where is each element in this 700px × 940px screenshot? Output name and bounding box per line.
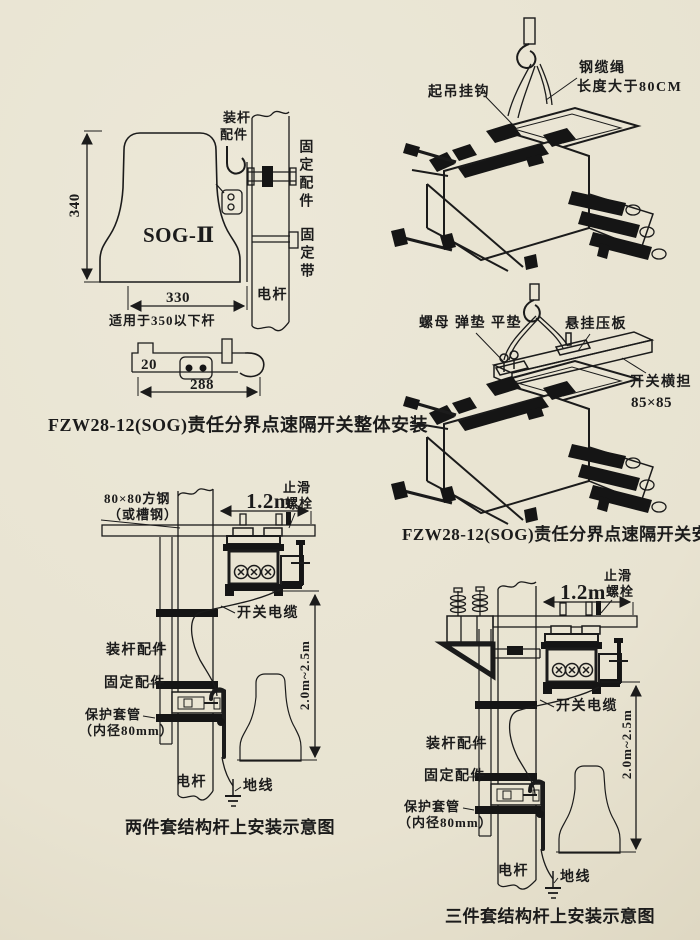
crossarm-switch-drawing (391, 361, 666, 524)
pole-fitting-label-line2: 配件 (220, 128, 248, 142)
ground-wire-label-two-piece: 地线 (243, 779, 274, 794)
ground-symbol-two-piece (225, 779, 241, 806)
height-range-label-three-piece: 2.0m~2.5m (620, 689, 634, 799)
pole-fitting-label-three-piece: 装杆配件 (426, 737, 488, 752)
antislip-label-line2-two-piece: 螺栓 (285, 497, 313, 511)
antislip-label-line2-three-piece: 螺栓 (606, 585, 634, 599)
caption-three-piece: 三件套结构杆上安装示意图 (430, 908, 670, 927)
switch-cable-label-two-piece: 开关电缆 (237, 606, 299, 621)
pole-label-two-piece: 电杆 (176, 775, 207, 790)
cable-length-label: 长度大于80CM (577, 80, 682, 95)
crane-hook-drawing (508, 18, 552, 118)
lifting-hook-label: 起吊挂钩 (428, 85, 490, 100)
switch-device-two-piece (223, 528, 310, 596)
height-range-label-two-piece: 2.0m~2.5m (298, 620, 312, 730)
switch-crossarm-label: 开关横担 (630, 375, 692, 390)
pole-drawing-three-piece (498, 582, 536, 889)
crossarm-drawing-three-piece (493, 601, 637, 627)
fixing-strap-drawing (252, 232, 298, 248)
fixing-fitting-label-three-piece: 固定配件 (424, 769, 486, 784)
pole-fitting-hook-drawing (222, 146, 245, 214)
switch-cable-three-piece (510, 687, 599, 879)
ground-symbol-three-piece (545, 871, 561, 898)
antislip-label-line1-two-piece: 止滑 (283, 481, 311, 495)
pole-fitting-label-line1: 装杆 (223, 111, 251, 125)
caption-switch-install: FZW28-12(SOG)责任分界点速隔开关安装 (402, 526, 698, 545)
steel-cable-label: 钢缆绳 (579, 61, 626, 76)
pole-fitting-label-two-piece: 装杆配件 (106, 643, 168, 658)
protect-tube-label-line2-three-piece: （内径80mm） (398, 816, 493, 830)
protect-tube-label-line1-two-piece: 保护套管 (85, 708, 141, 722)
dim-340-label: 340 (67, 185, 84, 225)
caption-two-piece: 两件套结构杆上安装示意图 (115, 819, 345, 838)
device-model-label: SOG-Ⅱ (143, 224, 205, 247)
sog-bell-outline-drawing (100, 133, 247, 282)
hardware-label: 螺母 弹垫 平垫 (419, 316, 522, 331)
crossarm-size-label: 85×85 (631, 395, 672, 412)
fit-note-label: 适用于350以下杆 (109, 314, 216, 328)
square-steel-label-line2: （或槽钢） (108, 508, 178, 522)
fixing-strap-label: 固定带 (298, 227, 313, 293)
dim-20-label: 20 (141, 357, 157, 374)
switch-device-three-piece (541, 626, 628, 694)
pole-label-fig1: 电杆 (257, 288, 288, 303)
hanging-plate-label: 悬挂压板 (565, 317, 627, 332)
square-steel-label-line1: 80×80方钢 (104, 492, 170, 506)
technical-drawing-page: SOG-Ⅱ 340 330 适用于350以下杆 装杆 配件 固定配件 固定带 电… (0, 0, 700, 940)
dim-288-label: 288 (182, 377, 222, 394)
hoisted-switch-drawing (391, 108, 666, 271)
fixing-fitting-label-two-piece: 固定配件 (104, 676, 166, 691)
protect-tube-label-line2-two-piece: （内径80mm） (79, 724, 174, 738)
caption-overall-install: FZW28-12(SOG)责任分界点速隔开关整体安装 (48, 416, 400, 436)
switch-cable-label-three-piece: 开关电缆 (556, 699, 618, 714)
ground-wire-label-three-piece: 地线 (560, 870, 591, 885)
pole-label-three-piece: 电杆 (498, 864, 529, 879)
span-dim-label-three-piece: 1.2m (556, 581, 610, 604)
line-art-canvas (0, 0, 700, 940)
fixing-fitting-label-fig1: 固定配件 (297, 139, 312, 229)
dim-330-label: 330 (158, 290, 198, 307)
protect-tube-label-line1-three-piece: 保护套管 (404, 800, 460, 814)
